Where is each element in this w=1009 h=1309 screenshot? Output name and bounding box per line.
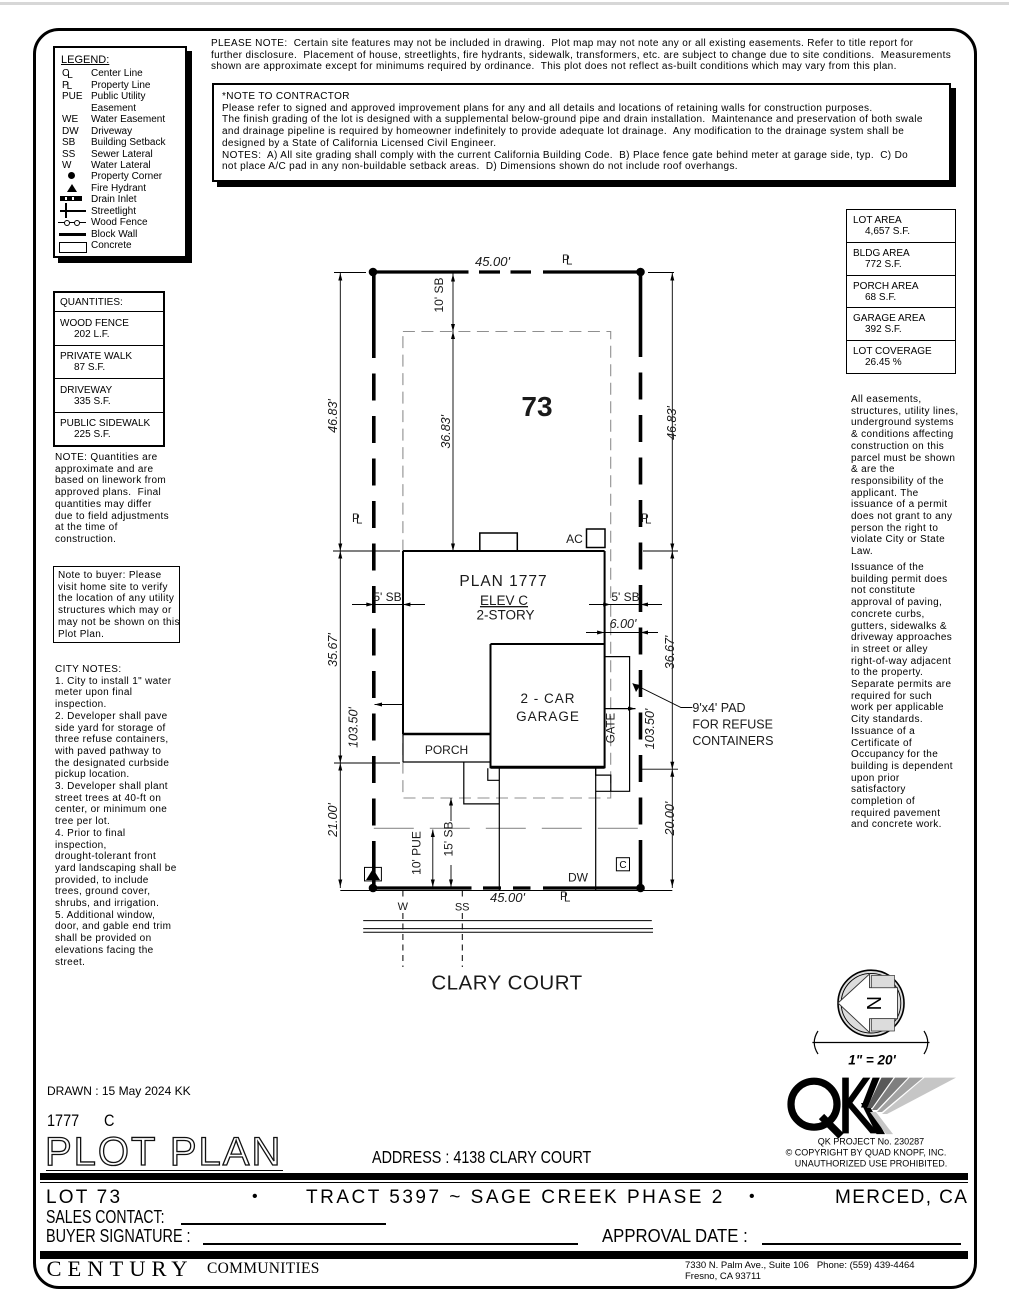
svg-text:5' SB: 5' SB bbox=[611, 590, 639, 604]
svg-text:L: L bbox=[356, 515, 363, 527]
svg-text:6.00': 6.00' bbox=[610, 617, 637, 631]
svg-text:FOR REFUSE: FOR REFUSE bbox=[692, 718, 773, 732]
svg-text:2 - CAR: 2 - CAR bbox=[520, 691, 575, 706]
svg-text:QK PROJECT No. 230287: QK PROJECT No. 230287 bbox=[818, 1137, 924, 1147]
svg-text:L: L bbox=[645, 515, 652, 527]
svg-text:2-STORY: 2-STORY bbox=[476, 608, 534, 623]
svg-text:© COPYRIGHT BY QUAD KNOPF, INC: © COPYRIGHT BY QUAD KNOPF, INC. bbox=[786, 1148, 947, 1158]
svg-text:21.00': 21.00' bbox=[326, 803, 340, 838]
svg-text:L: L bbox=[564, 893, 571, 905]
svg-text:36.83': 36.83' bbox=[439, 414, 453, 448]
svg-text:5' SB: 5' SB bbox=[373, 590, 401, 604]
svg-text:10' SB: 10' SB bbox=[432, 278, 446, 313]
svg-text:73: 73 bbox=[521, 391, 552, 422]
svg-text:PORCH: PORCH bbox=[425, 743, 468, 757]
svg-text:35.67': 35.67' bbox=[326, 633, 340, 667]
svg-text:45.00': 45.00' bbox=[490, 890, 526, 905]
svg-text:45.00': 45.00' bbox=[475, 254, 511, 269]
svg-text:46.83': 46.83' bbox=[326, 399, 340, 433]
svg-text:103.50': 103.50' bbox=[643, 708, 657, 749]
svg-text:CONTAINERS: CONTAINERS bbox=[692, 734, 773, 748]
svg-text:W: W bbox=[398, 901, 409, 913]
svg-text:ELEV C: ELEV C bbox=[480, 593, 528, 608]
svg-text:10' PUE: 10' PUE bbox=[410, 831, 424, 875]
svg-text:AC: AC bbox=[566, 532, 583, 546]
svg-text:SS: SS bbox=[455, 902, 470, 914]
svg-text:1" = 20': 1" = 20' bbox=[848, 1053, 896, 1068]
svg-text:CLARY COURT: CLARY COURT bbox=[431, 972, 582, 995]
svg-text:L: L bbox=[566, 256, 573, 268]
svg-text:46.83': 46.83' bbox=[665, 406, 679, 440]
svg-text:GATE: GATE bbox=[606, 712, 618, 743]
svg-text:DW: DW bbox=[568, 871, 589, 885]
svg-text:9'x4' PAD: 9'x4' PAD bbox=[692, 701, 745, 715]
svg-text:GARAGE: GARAGE bbox=[516, 709, 580, 724]
svg-text:C: C bbox=[619, 860, 626, 871]
svg-text:PLAN 1777: PLAN 1777 bbox=[459, 573, 547, 590]
svg-text:N: N bbox=[864, 996, 886, 1010]
svg-text:UNAUTHORIZED USE PROHIBITED.: UNAUTHORIZED USE PROHIBITED. bbox=[795, 1159, 948, 1169]
svg-text:15' SB: 15' SB bbox=[442, 822, 456, 857]
svg-text:103.50': 103.50' bbox=[347, 707, 361, 748]
svg-text:20.00': 20.00' bbox=[663, 801, 677, 836]
svg-text:36.67': 36.67' bbox=[663, 635, 677, 669]
